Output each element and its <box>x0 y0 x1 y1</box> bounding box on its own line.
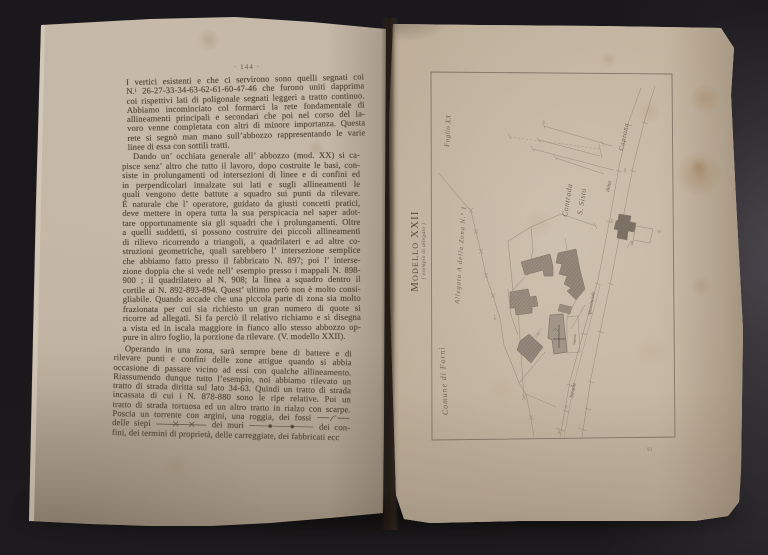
svg-text:93: 93 <box>647 448 653 453</box>
svg-text:61: 61 <box>610 218 614 222</box>
svg-text:47: 47 <box>542 120 546 124</box>
svg-text:Strada: Strada <box>569 383 577 399</box>
svg-text:34: 34 <box>557 430 561 434</box>
svg-text:Caprona: Caprona <box>618 122 630 151</box>
svg-text:Allegato A della Zona N.º 1: Allegato A della Zona N.º 1 <box>454 205 468 305</box>
svg-text:877: 877 <box>493 314 497 320</box>
svg-text:Foglio XX: Foglio XX <box>443 114 453 148</box>
svg-text:908: 908 <box>630 240 634 246</box>
svg-text:60: 60 <box>623 168 627 172</box>
svg-text:Comune di Forni: Comune di Forni <box>437 346 450 415</box>
svg-text:36: 36 <box>564 405 568 409</box>
svg-text:S. Sisto: S. Sisto <box>575 187 588 215</box>
svg-text:cortile: cortile <box>535 331 542 339</box>
svg-text:Contrada: Contrada <box>560 183 574 218</box>
svg-text:provinciale: provinciale <box>588 290 597 315</box>
svg-text:Sagrato: Sagrato <box>572 333 577 345</box>
svg-text:detta: detta <box>605 180 613 192</box>
